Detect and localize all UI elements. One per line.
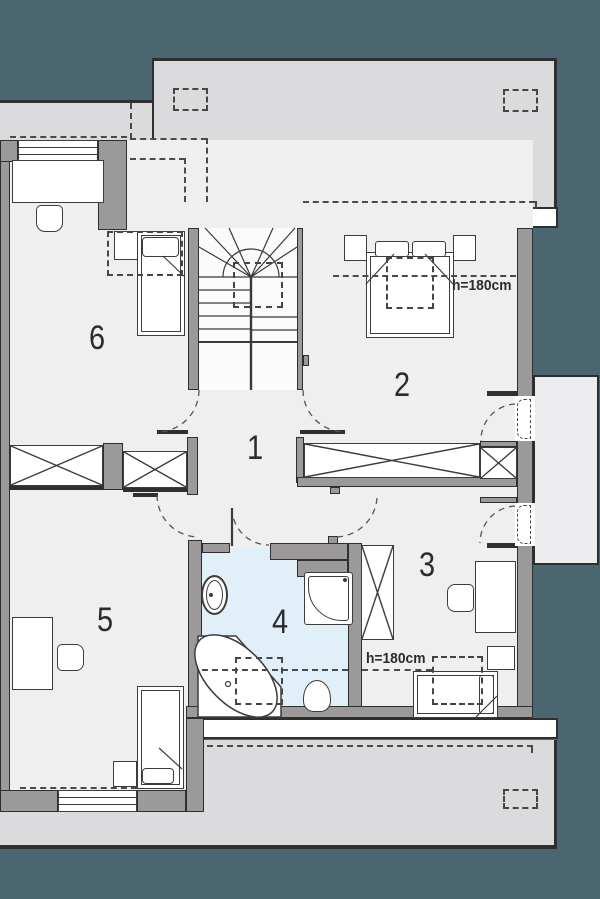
headroom-dashed-bathroom — [235, 657, 283, 705]
door-arc-room6 — [157, 390, 199, 432]
room-label-4: 4 — [270, 605, 290, 639]
roof-dash-h1 — [130, 138, 207, 140]
roof-dash-h2 — [130, 158, 185, 160]
headroom-dashed-room3 — [432, 656, 483, 705]
window-arc-right-1 — [481, 404, 515, 441]
roof-eave-dashed-top-corner — [535, 201, 537, 209]
roof-eave-dashed-top — [303, 201, 535, 203]
height-label-room2: h=180cm — [452, 277, 511, 294]
door-arc-room2 — [303, 390, 345, 432]
room-label-3: 3 — [417, 548, 437, 582]
room-label-6: 6 — [87, 321, 107, 355]
ceiling-line-bathroom — [202, 669, 348, 671]
roof-eave-dashed-bottom — [207, 745, 533, 747]
chimney-dashed-top-left — [173, 88, 208, 111]
room-label-2: 2 — [392, 368, 412, 402]
chimney-dashed-top-right — [503, 89, 538, 112]
headroom-dashed-stairs — [233, 262, 283, 308]
room-label-1: 1 — [245, 431, 265, 465]
door-arc-room3 — [335, 498, 377, 537]
headroom-dashed-room6 — [107, 231, 183, 276]
headroom-dashed-room2 — [386, 257, 434, 309]
line-overlay — [0, 0, 600, 899]
wardrobe-cross-lines — [11, 444, 516, 639]
room-label-5: 5 — [95, 603, 115, 637]
roof-dash-v2 — [206, 138, 208, 202]
chimney-dashed-bottom-right — [503, 789, 538, 809]
door-arc-room5 — [157, 495, 199, 537]
roof-dash-v1 — [130, 103, 132, 139]
door-arc-bathroom — [232, 508, 269, 545]
roof-dash-v3 — [184, 158, 186, 202]
height-label-room3: h=180cm — [366, 650, 425, 667]
window-arc-right-2 — [480, 506, 515, 543]
door-swing-arcs — [157, 390, 515, 545]
staircase — [199, 228, 297, 390]
floor-plan-canvas: 1 2 3 4 5 6 h=180cm h=180cm — [0, 0, 600, 899]
ceiling-line-room3 — [362, 669, 432, 671]
roof-eave-dashed-bottom-corner — [531, 745, 533, 753]
